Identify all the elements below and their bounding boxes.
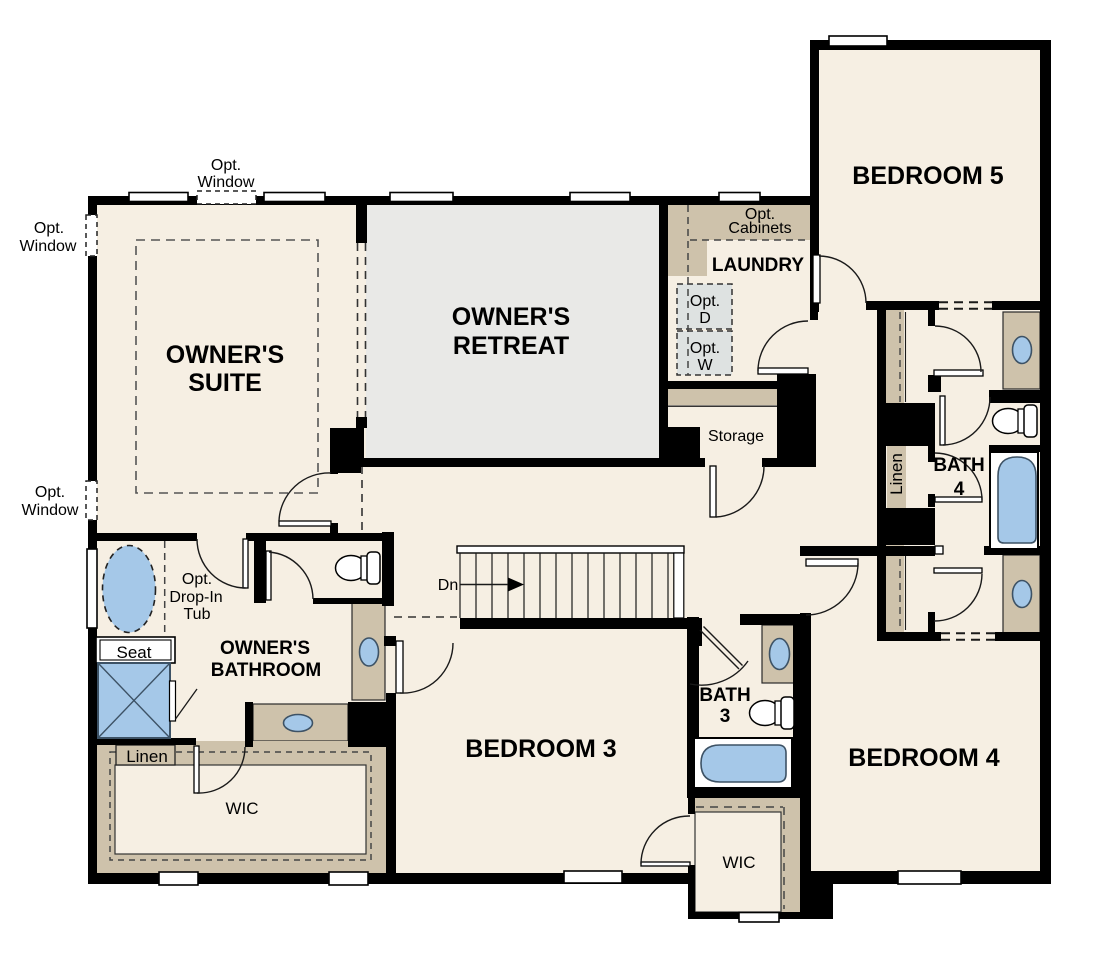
svg-text:3: 3 xyxy=(720,706,731,727)
svg-text:LAUNDRY: LAUNDRY xyxy=(712,255,805,276)
svg-text:Opt.: Opt. xyxy=(211,157,241,174)
svg-text:RETREAT: RETREAT xyxy=(453,332,569,360)
svg-text:Opt.: Opt. xyxy=(35,484,65,501)
svg-text:OWNER'S: OWNER'S xyxy=(452,303,570,331)
svg-text:Drop-In: Drop-In xyxy=(169,589,222,606)
svg-text:Opt.: Opt. xyxy=(690,293,720,310)
svg-text:Opt.: Opt. xyxy=(182,571,212,588)
svg-text:D: D xyxy=(699,310,711,327)
svg-text:Storage: Storage xyxy=(708,428,764,445)
svg-text:Opt.: Opt. xyxy=(690,340,720,357)
svg-text:Tub: Tub xyxy=(184,606,211,623)
svg-text:4: 4 xyxy=(954,479,965,500)
svg-text:Cabinets: Cabinets xyxy=(728,220,791,237)
svg-text:BATH: BATH xyxy=(933,455,984,476)
svg-text:Seat: Seat xyxy=(117,643,152,662)
svg-text:BATH: BATH xyxy=(699,685,750,706)
svg-text:OWNER'S: OWNER'S xyxy=(166,341,284,369)
svg-text:BEDROOM 3: BEDROOM 3 xyxy=(465,735,616,763)
svg-text:Linen: Linen xyxy=(887,453,906,495)
svg-text:SUITE: SUITE xyxy=(188,369,262,397)
svg-text:Window: Window xyxy=(198,174,255,191)
svg-text:Window: Window xyxy=(22,502,79,519)
svg-text:Linen: Linen xyxy=(126,747,168,766)
svg-text:Window: Window xyxy=(20,238,77,255)
svg-text:BATHROOM: BATHROOM xyxy=(211,660,321,681)
svg-text:WIC: WIC xyxy=(225,799,258,818)
svg-text:OWNER'S: OWNER'S xyxy=(220,638,310,659)
svg-text:Dn: Dn xyxy=(438,577,458,594)
svg-text:Opt.: Opt. xyxy=(34,220,64,237)
svg-text:BEDROOM 4: BEDROOM 4 xyxy=(848,744,1000,772)
svg-text:WIC: WIC xyxy=(722,853,755,872)
svg-text:W: W xyxy=(697,357,713,374)
svg-text:BEDROOM 5: BEDROOM 5 xyxy=(852,162,1004,190)
